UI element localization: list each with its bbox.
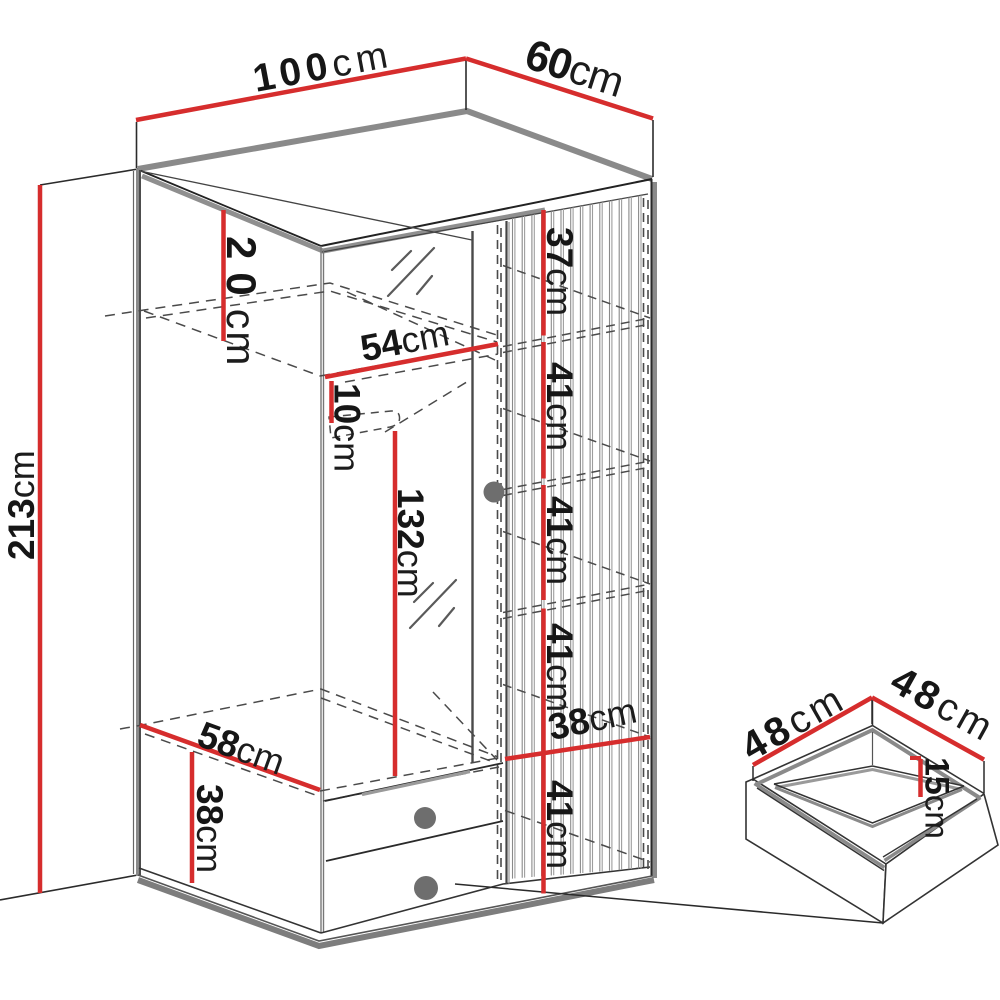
svg-text:41cm: 41cm bbox=[539, 623, 580, 712]
svg-text:38cm: 38cm bbox=[189, 784, 230, 873]
svg-text:41cm: 41cm bbox=[539, 496, 580, 585]
svg-text:37cm: 37cm bbox=[539, 227, 580, 316]
svg-text:41cm: 41cm bbox=[539, 780, 580, 869]
svg-text:41cm: 41cm bbox=[539, 362, 580, 451]
svg-text:20cm: 20cm bbox=[218, 236, 265, 367]
svg-text:132cm: 132cm bbox=[390, 488, 431, 598]
svg-text:213cm: 213cm bbox=[1, 450, 42, 560]
svg-text:10cm: 10cm bbox=[327, 383, 368, 472]
svg-text:15cm: 15cm bbox=[918, 757, 956, 839]
